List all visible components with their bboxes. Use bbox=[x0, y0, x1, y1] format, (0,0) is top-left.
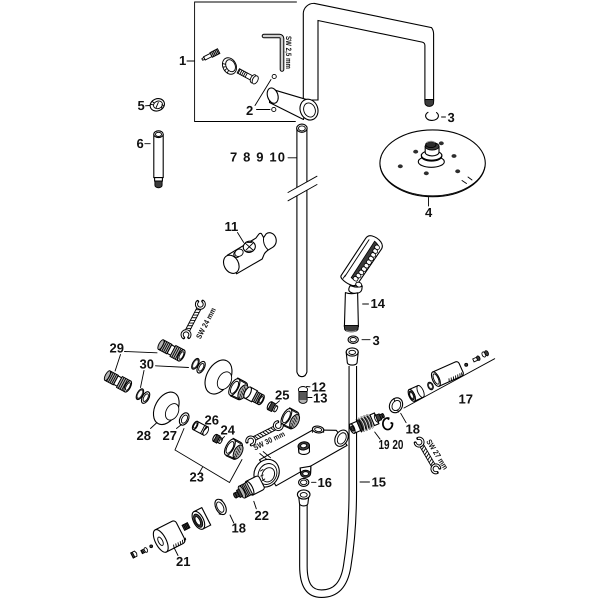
svg-text:14: 14 bbox=[371, 296, 386, 311]
svg-text:19 20: 19 20 bbox=[379, 437, 404, 452]
svg-text:11: 11 bbox=[225, 219, 239, 234]
svg-text:17: 17 bbox=[459, 392, 473, 407]
svg-text:1: 1 bbox=[179, 53, 186, 68]
svg-text:25: 25 bbox=[275, 388, 289, 403]
svg-text:15: 15 bbox=[372, 475, 386, 490]
svg-text:23: 23 bbox=[190, 470, 204, 485]
svg-text:27: 27 bbox=[163, 428, 177, 443]
svg-text:13: 13 bbox=[313, 391, 327, 406]
svg-text:6: 6 bbox=[137, 136, 144, 151]
svg-text:21: 21 bbox=[176, 554, 190, 569]
svg-text:28: 28 bbox=[137, 428, 151, 443]
svg-text:29: 29 bbox=[110, 341, 124, 356]
svg-text:5: 5 bbox=[138, 98, 145, 113]
svg-text:3: 3 bbox=[373, 333, 380, 348]
svg-text:4: 4 bbox=[425, 205, 433, 220]
svg-text:SW 2,5 mm: SW 2,5 mm bbox=[284, 36, 293, 69]
svg-text:18: 18 bbox=[406, 422, 420, 437]
svg-text:3: 3 bbox=[448, 110, 455, 125]
svg-text:2: 2 bbox=[246, 103, 253, 118]
svg-text:16: 16 bbox=[318, 475, 332, 490]
svg-text:24: 24 bbox=[221, 423, 236, 438]
svg-text:30: 30 bbox=[140, 357, 154, 372]
svg-text:22: 22 bbox=[255, 508, 269, 523]
svg-text:26: 26 bbox=[205, 413, 219, 428]
